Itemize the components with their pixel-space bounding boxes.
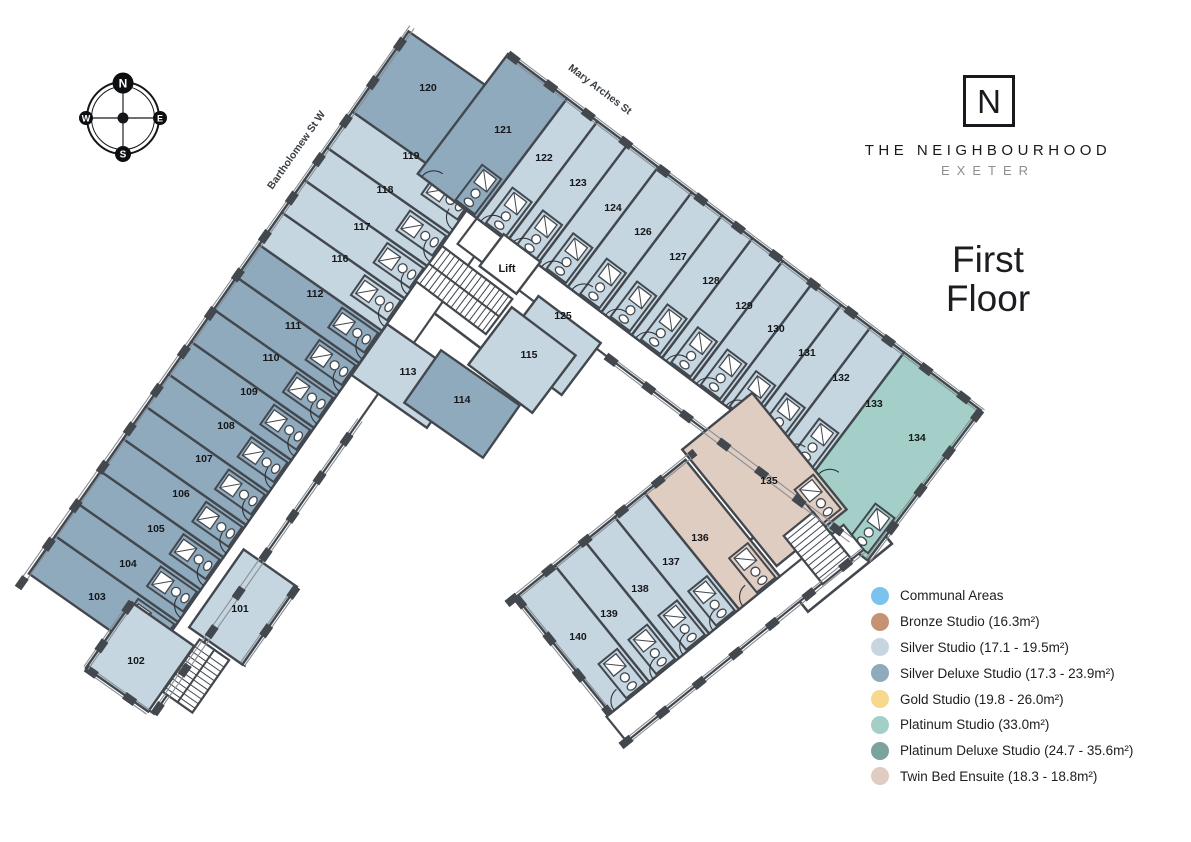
room-label-102: 102 [127, 655, 145, 667]
legend-label: Twin Bed Ensuite (18.3 - 18.8m²) [900, 769, 1097, 784]
room-label-111: 111 [285, 320, 302, 332]
room-label-139: 139 [600, 608, 618, 620]
room-label-134: 134 [908, 432, 926, 444]
brand-city: EXETER [858, 163, 1118, 178]
room-label-103: 103 [88, 591, 106, 603]
compass-center-dot [118, 113, 129, 124]
legend-label: Platinum Studio (33.0m²) [900, 717, 1049, 732]
room-label-118: 118 [377, 184, 394, 196]
room-label-110: 110 [263, 352, 280, 364]
legend-item-platinum: Platinum Studio (33.0m²) [871, 712, 1133, 738]
legend-swatch-silver_deluxe [871, 664, 889, 682]
legend-swatch-silver [871, 638, 889, 656]
brand-name: THE NEIGHBOURHOOD [858, 142, 1118, 159]
room-label-135: 135 [760, 475, 778, 487]
room-label-113: 113 [400, 366, 417, 378]
legend-swatch-bronze [871, 613, 889, 631]
room-label-108: 108 [217, 420, 235, 432]
room-label-116: 116 [332, 253, 349, 265]
room-label-125: 125 [554, 310, 572, 322]
room-label-126: 126 [634, 226, 652, 238]
page-title-line1: First [908, 240, 1068, 279]
compass-n-label: N [119, 77, 128, 91]
room-label-137: 137 [662, 556, 680, 568]
room-label-132: 132 [832, 372, 850, 384]
legend-item-bronze: Bronze Studio (16.3m²) [871, 609, 1133, 635]
building [4, 31, 981, 741]
room-label-130: 130 [767, 323, 785, 335]
legend-label: Bronze Studio (16.3m²) [900, 614, 1040, 629]
room-label-140: 140 [569, 631, 587, 643]
legend-swatch-communal [871, 587, 889, 605]
room-label-127: 127 [669, 251, 687, 263]
floor-plan-page: N E S W Bartholomew St W Mary Arches St … [0, 0, 1191, 842]
legend-label: Communal Areas [900, 588, 1004, 603]
legend-label: Gold Studio (19.8 - 26.0m²) [900, 692, 1064, 707]
room-label-138: 138 [631, 583, 649, 595]
brand-logo-icon: N [963, 75, 1015, 127]
room-label-112: 112 [307, 288, 324, 300]
room-label-124: 124 [604, 202, 622, 214]
room-label-101: 101 [231, 603, 249, 615]
room-label-128: 128 [702, 275, 720, 287]
compass: N E S W [79, 73, 167, 163]
legend-label: Platinum Deluxe Studio (24.7 - 35.6m²) [900, 743, 1133, 758]
legend-label: Silver Studio (17.1 - 19.5m²) [900, 640, 1069, 655]
legend: Communal AreasBronze Studio (16.3m²)Silv… [871, 583, 1133, 789]
brand-logo-letter: N [977, 85, 1001, 118]
room-label-104: 104 [119, 558, 137, 570]
page-title: First Floor [908, 240, 1068, 318]
room-label-119: 119 [403, 150, 420, 162]
legend-label: Silver Deluxe Studio (17.3 - 23.9m²) [900, 666, 1115, 681]
room-label-105: 105 [147, 523, 165, 535]
room-label-129: 129 [735, 300, 753, 312]
room-label-122: 122 [535, 152, 553, 164]
room-label-120: 120 [419, 82, 437, 94]
room-label-136: 136 [691, 532, 709, 544]
compass-e-label: E [157, 114, 163, 124]
room-label-114: 114 [454, 394, 471, 406]
compass-s-label: S [120, 150, 127, 161]
room-label-121: 121 [494, 124, 512, 136]
legend-item-platinum_deluxe: Platinum Deluxe Studio (24.7 - 35.6m²) [871, 738, 1133, 764]
legend-item-twin: Twin Bed Ensuite (18.3 - 18.8m²) [871, 764, 1133, 790]
room-label-123: 123 [569, 177, 587, 189]
lift-label: Lift [498, 263, 515, 275]
legend-swatch-platinum [871, 716, 889, 734]
room-label-106: 106 [172, 488, 190, 500]
page-title-line2: Floor [908, 279, 1068, 318]
room-label-115: 115 [521, 349, 538, 361]
legend-item-gold: Gold Studio (19.8 - 26.0m²) [871, 686, 1133, 712]
room-label-133: 133 [865, 398, 883, 410]
legend-item-silver_deluxe: Silver Deluxe Studio (17.3 - 23.9m²) [871, 660, 1133, 686]
legend-swatch-platinum_deluxe [871, 742, 889, 760]
legend-item-silver: Silver Studio (17.1 - 19.5m²) [871, 635, 1133, 661]
room-label-117: 117 [354, 221, 371, 233]
room-label-131: 131 [798, 347, 816, 359]
room-label-109: 109 [240, 386, 258, 398]
compass-w-label: W [82, 114, 91, 124]
legend-item-communal: Communal Areas [871, 583, 1133, 609]
legend-swatch-twin [871, 767, 889, 785]
room-label-107: 107 [195, 453, 213, 465]
legend-swatch-gold [871, 690, 889, 708]
